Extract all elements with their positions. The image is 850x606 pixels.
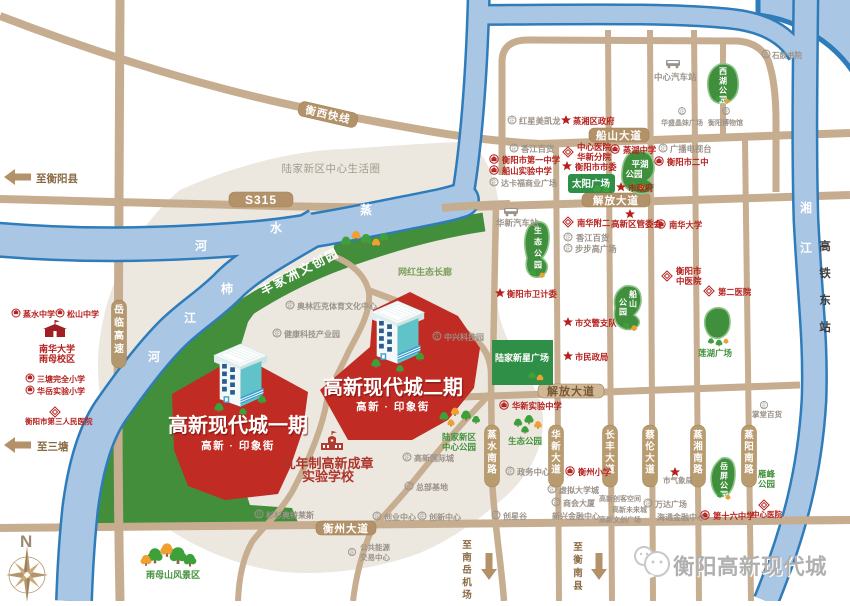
- svg-text:新: 新: [551, 441, 561, 453]
- svg-text:至衡阳县: 至衡阳县: [36, 172, 78, 185]
- svg-text:衡州大道: 衡州大道: [323, 522, 369, 535]
- svg-text:创星谷: 创星谷: [502, 511, 528, 521]
- svg-text:企: 企: [349, 548, 355, 556]
- svg-text:陆家新区中心生活圈: 陆家新区中心生活圈: [282, 162, 381, 175]
- svg-text:雨母山风景区: 雨母山风景区: [146, 569, 200, 580]
- svg-text:水: 水: [487, 441, 497, 453]
- svg-text:创新中心: 创新中心: [428, 512, 461, 522]
- svg-text:企: 企: [511, 144, 517, 152]
- svg-text:大: 大: [605, 452, 615, 464]
- svg-text:万达广场: 万达广场: [654, 499, 687, 509]
- svg-text:阳: 阳: [744, 442, 754, 453]
- svg-text:中兴科技园: 中兴科技园: [444, 332, 484, 342]
- svg-text:高新 · 印象街: 高新 · 印象街: [356, 400, 430, 413]
- svg-text:企: 企: [761, 401, 767, 409]
- svg-text:企: 企: [274, 329, 280, 337]
- svg-text:企: 企: [256, 510, 262, 518]
- svg-text:衡阳市第一中学: 衡阳市第一中学: [501, 155, 561, 165]
- svg-text:高新现代城二期: 高新现代城二期: [323, 375, 463, 399]
- svg-text:雨母校区: 雨母校区: [39, 353, 75, 364]
- svg-text:香江百货: 香江百货: [575, 233, 610, 243]
- svg-text:平湖: 平湖: [631, 159, 649, 169]
- svg-text:南: 南: [573, 567, 583, 579]
- svg-text:场: 场: [462, 589, 472, 601]
- svg-text:南: 南: [693, 452, 703, 464]
- svg-text:道: 道: [645, 464, 655, 476]
- svg-text:高: 高: [114, 329, 124, 342]
- svg-text:山: 山: [629, 299, 637, 309]
- svg-text:N: N: [20, 532, 32, 551]
- svg-text:县: 县: [573, 581, 583, 592]
- svg-text:S315: S315: [245, 193, 277, 207]
- svg-text:华盛晶妹广场: 华盛晶妹广场: [661, 118, 703, 127]
- svg-text:长: 长: [605, 429, 615, 441]
- svg-text:网红生态长廊: 网红生态长廊: [398, 266, 452, 277]
- svg-text:至: 至: [573, 542, 583, 553]
- svg-text:衡阳市二中: 衡阳市二中: [666, 157, 709, 167]
- svg-text:掌堂百货: 掌堂百货: [752, 409, 782, 419]
- svg-text:湘: 湘: [693, 441, 703, 453]
- svg-text:华岳实验小学: 华岳实验小学: [37, 386, 85, 396]
- svg-text:道: 道: [551, 464, 561, 476]
- svg-text:柿: 柿: [221, 281, 233, 296]
- svg-text:陆家新星广场: 陆家新星广场: [495, 352, 549, 363]
- svg-text:杉杉奥特莱斯: 杉杉奥特莱斯: [266, 510, 314, 520]
- svg-text:创业中心: 创业中心: [383, 512, 416, 522]
- svg-text:衡: 衡: [573, 554, 583, 566]
- svg-text:达卡福商业广场: 达卡福商业广场: [501, 178, 557, 188]
- svg-text:蒸: 蒸: [693, 429, 703, 441]
- svg-text:中心汽车站: 中心汽车站: [654, 72, 697, 82]
- svg-text:虚拟大学城: 虚拟大学城: [559, 485, 599, 495]
- svg-text:至: 至: [462, 540, 472, 551]
- svg-text:南: 南: [462, 552, 472, 564]
- svg-text:蒸: 蒸: [487, 429, 497, 441]
- svg-text:船: 船: [629, 289, 637, 299]
- svg-text:至三塘: 至三塘: [37, 440, 69, 453]
- svg-text:企: 企: [507, 467, 513, 475]
- svg-text:衡阳市市委: 衡阳市市委: [574, 162, 617, 172]
- svg-text:松山中学: 松山中学: [67, 309, 99, 319]
- svg-text:江: 江: [184, 310, 196, 325]
- svg-text:公: 公: [719, 86, 727, 95]
- svg-text:园: 园: [619, 308, 627, 317]
- svg-text:公共能源: 公共能源: [360, 542, 390, 552]
- svg-text:蒸湖中学: 蒸湖中学: [623, 145, 657, 155]
- svg-text:步步高广场: 步步高广场: [575, 244, 617, 254]
- svg-text:奥林匹克体育文化中心: 奥林匹克体育文化中心: [296, 301, 377, 311]
- svg-text:岳: 岳: [114, 303, 124, 316]
- svg-text:雁峰: 雁峰: [758, 469, 776, 479]
- svg-text:高新文创广场: 高新文创广场: [599, 515, 641, 524]
- svg-text:中心医院: 中心医院: [752, 509, 782, 519]
- svg-text:南: 南: [744, 452, 754, 464]
- svg-text:新兴金融中心: 新兴金融中心: [552, 511, 600, 521]
- svg-text:市民政局: 市民政局: [575, 352, 608, 362]
- svg-text:公园: 公园: [625, 169, 642, 179]
- svg-text:临: 临: [114, 316, 124, 329]
- svg-text:高: 高: [819, 239, 831, 253]
- svg-text:南华附二: 南华附二: [577, 218, 611, 228]
- svg-text:广播电视台: 广播电视台: [670, 144, 712, 154]
- svg-text:中心医院: 中心医院: [577, 142, 612, 152]
- svg-text:香江百货: 香江百货: [520, 144, 555, 154]
- svg-text:高新 · 印象街: 高新 · 印象街: [201, 439, 275, 452]
- svg-text:机: 机: [462, 577, 472, 589]
- svg-text:水: 水: [270, 220, 283, 235]
- svg-text:石鼓书院: 石鼓书院: [771, 50, 802, 60]
- svg-text:岳: 岳: [462, 564, 472, 576]
- svg-text:企: 企: [404, 453, 410, 461]
- svg-text:企: 企: [645, 499, 651, 507]
- svg-text:总部基地: 总部基地: [416, 482, 448, 492]
- svg-text:解放大道: 解放大道: [547, 384, 595, 398]
- svg-text:健康科技产业园: 健康科技产业园: [284, 329, 340, 339]
- svg-text:衡阳高新现代城: 衡阳高新现代城: [673, 554, 827, 579]
- svg-text:市交警支队: 市交警支队: [575, 318, 617, 328]
- svg-text:衡州小学: 衡州小学: [577, 467, 612, 477]
- svg-text:河: 河: [147, 349, 160, 364]
- svg-text:企: 企: [553, 498, 559, 506]
- svg-text:船山大道: 船山大道: [596, 129, 642, 142]
- svg-text:第十六中学: 第十六中学: [713, 511, 755, 521]
- svg-text:江: 江: [800, 240, 812, 255]
- svg-text:公园: 公园: [758, 479, 775, 489]
- svg-text:高新国际城: 高新国际城: [414, 453, 454, 463]
- svg-text:海通金融中心: 海通金融中心: [657, 512, 705, 522]
- svg-text:东: 东: [819, 293, 831, 307]
- svg-text:交易中心: 交易中心: [360, 552, 390, 562]
- svg-text:高新区管委会: 高新区管委会: [611, 219, 663, 229]
- svg-text:船山实验中学: 船山实验中学: [502, 166, 552, 176]
- svg-text:企: 企: [406, 482, 412, 490]
- svg-text:速: 速: [114, 342, 124, 355]
- svg-text:公: 公: [720, 481, 728, 490]
- svg-text:屏: 屏: [720, 472, 728, 481]
- svg-text:衡阳博物馆: 衡阳博物馆: [707, 118, 743, 127]
- svg-text:红星美凯龙: 红星美凯龙: [519, 116, 561, 126]
- svg-text:大: 大: [645, 452, 655, 464]
- svg-text:蒸水中学: 蒸水中学: [23, 309, 55, 319]
- svg-text:路: 路: [744, 464, 754, 476]
- svg-text:湘: 湘: [800, 200, 812, 215]
- svg-text:路: 路: [693, 464, 703, 476]
- svg-text:实验学校: 实验学校: [302, 469, 355, 484]
- svg-text:三塘完全小学: 三塘完全小学: [37, 374, 85, 384]
- svg-text:公: 公: [619, 298, 627, 307]
- svg-text:商会大厦: 商会大厦: [563, 498, 596, 508]
- svg-text:华新实验中学: 华新实验中学: [512, 401, 562, 411]
- svg-text:衡阳市第三人民医院: 衡阳市第三人民医院: [25, 416, 93, 426]
- svg-text:企: 企: [434, 332, 440, 340]
- svg-text:大: 大: [551, 452, 561, 464]
- svg-text:中心公园: 中心公园: [442, 442, 476, 452]
- svg-text:园: 园: [534, 261, 542, 270]
- svg-text:第二医院: 第二医院: [718, 287, 752, 297]
- svg-text:企: 企: [565, 244, 571, 252]
- svg-text:企: 企: [287, 301, 293, 309]
- svg-text:衡阳市卫计委: 衡阳市卫计委: [506, 289, 557, 299]
- svg-text:企: 企: [660, 144, 666, 152]
- svg-text:企: 企: [509, 116, 515, 124]
- svg-text:生态公园: 生态公园: [508, 436, 542, 446]
- svg-text:河: 河: [194, 238, 207, 253]
- svg-text:衡阳市: 衡阳市: [676, 266, 702, 276]
- svg-text:湖: 湖: [719, 76, 727, 86]
- svg-text:华新分院: 华新分院: [577, 152, 612, 162]
- svg-text:华新汽车站: 华新汽车站: [496, 218, 539, 228]
- svg-text:公: 公: [534, 249, 542, 258]
- svg-text:丰: 丰: [605, 441, 615, 453]
- svg-text:伦: 伦: [645, 441, 655, 453]
- svg-text:西: 西: [719, 67, 727, 76]
- svg-text:企: 企: [419, 512, 425, 520]
- svg-text:蒸湘区政府: 蒸湘区政府: [573, 116, 615, 126]
- svg-text:企: 企: [565, 233, 571, 241]
- svg-text:中医院: 中医院: [676, 276, 702, 286]
- svg-text:企: 企: [491, 178, 497, 186]
- svg-text:蔡: 蔡: [644, 429, 655, 441]
- svg-text:高新创客空间: 高新创客空间: [599, 494, 641, 503]
- svg-text:态: 态: [534, 237, 542, 247]
- svg-text:华: 华: [551, 429, 561, 441]
- svg-text:市政府: 市政府: [628, 183, 654, 193]
- svg-text:蒸: 蒸: [744, 429, 754, 441]
- svg-text:企: 企: [723, 108, 728, 115]
- svg-text:蒸: 蒸: [360, 202, 372, 217]
- svg-text:岳: 岳: [720, 461, 728, 471]
- svg-text:路: 路: [487, 464, 497, 476]
- svg-text:企: 企: [549, 485, 555, 493]
- svg-text:市气象局: 市气象局: [663, 475, 693, 485]
- svg-text:企: 企: [374, 512, 380, 520]
- svg-text:铁: 铁: [819, 266, 831, 280]
- svg-text:高新现代城一期: 高新现代城一期: [168, 413, 308, 437]
- svg-text:莲湖广场: 莲湖广场: [698, 348, 733, 358]
- svg-text:政务中心: 政务中心: [517, 467, 551, 477]
- svg-text:南华大学: 南华大学: [39, 343, 75, 354]
- svg-text:高新未来城: 高新未来城: [612, 505, 647, 514]
- svg-text:企: 企: [679, 108, 684, 115]
- svg-text:企: 企: [763, 50, 769, 58]
- svg-text:企: 企: [493, 511, 499, 519]
- svg-text:解放大道: 解放大道: [592, 194, 639, 207]
- svg-text:南: 南: [487, 452, 497, 464]
- svg-text:陆家新区: 陆家新区: [442, 432, 477, 442]
- svg-text:南华大学: 南华大学: [669, 220, 703, 230]
- svg-text:站: 站: [819, 320, 831, 334]
